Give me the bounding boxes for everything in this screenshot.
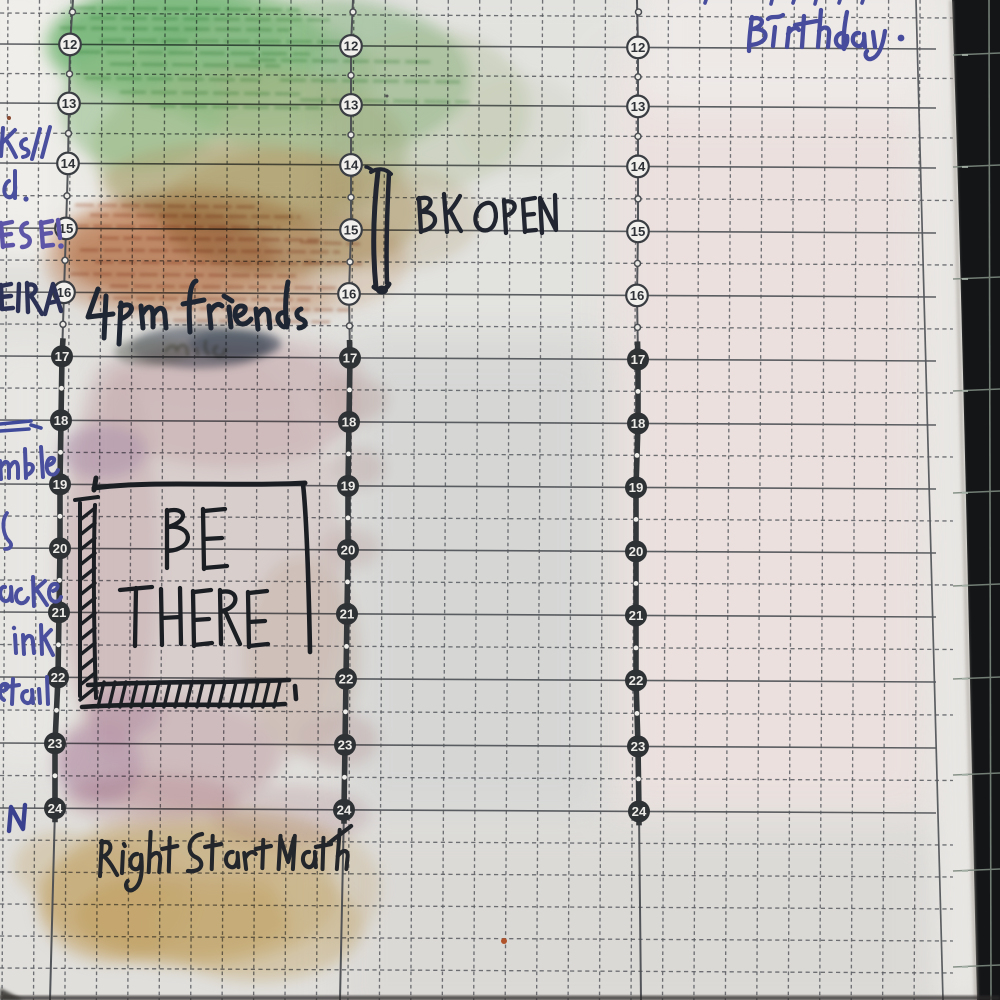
svg-text:21: 21: [52, 605, 67, 620]
svg-text:17: 17: [343, 351, 358, 366]
svg-text:15: 15: [631, 224, 646, 239]
svg-text:24: 24: [632, 804, 647, 819]
svg-text:14: 14: [631, 159, 646, 174]
svg-text:13: 13: [631, 99, 646, 114]
svg-text:21: 21: [629, 608, 644, 623]
svg-text:24: 24: [48, 801, 63, 816]
svg-text:17: 17: [631, 352, 646, 367]
svg-text:22: 22: [339, 671, 354, 686]
svg-text:18: 18: [342, 415, 357, 430]
svg-text:15: 15: [344, 223, 359, 238]
svg-text:13: 13: [62, 96, 77, 111]
svg-text:12: 12: [631, 40, 646, 55]
svg-text:21: 21: [340, 607, 355, 622]
svg-text:20: 20: [53, 541, 68, 556]
svg-text:19: 19: [341, 479, 356, 494]
svg-text:12: 12: [344, 39, 359, 54]
svg-text:22: 22: [51, 670, 66, 685]
svg-text:18: 18: [631, 416, 646, 431]
svg-text:23: 23: [631, 739, 646, 754]
svg-text:18: 18: [54, 413, 69, 428]
svg-text:14: 14: [61, 156, 76, 171]
svg-text:12: 12: [63, 37, 78, 52]
svg-text:16: 16: [630, 288, 645, 303]
svg-text:20: 20: [629, 544, 644, 559]
svg-text:19: 19: [629, 480, 644, 495]
svg-text:22: 22: [629, 673, 644, 688]
svg-text:16: 16: [342, 287, 357, 302]
svg-text:20: 20: [341, 543, 356, 558]
svg-text:23: 23: [48, 736, 63, 751]
svg-text:23: 23: [338, 737, 353, 752]
svg-text:17: 17: [55, 349, 70, 364]
svg-text:24: 24: [337, 802, 352, 817]
svg-text:14: 14: [344, 158, 359, 173]
svg-text:19: 19: [53, 477, 68, 492]
svg-text:13: 13: [344, 98, 359, 113]
